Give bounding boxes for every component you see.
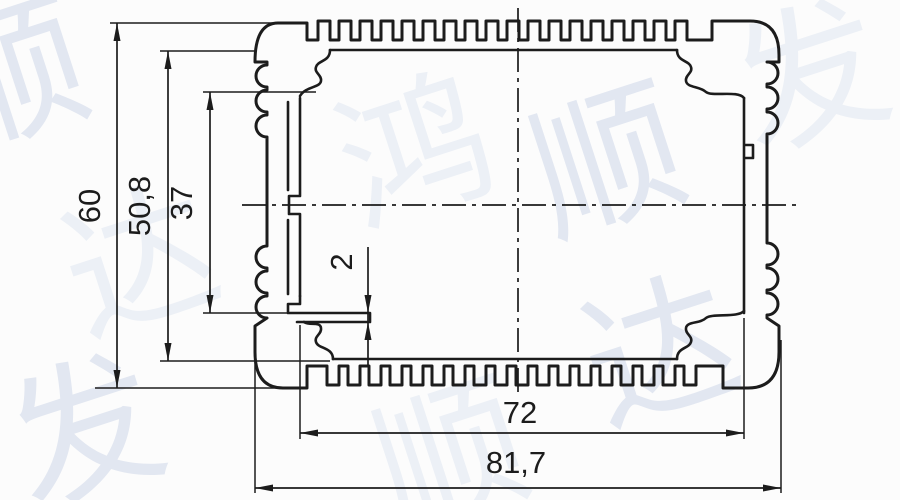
screw-boss-bottom-left [304,322,333,359]
technical-drawing: 顺 发 鸿 顺 达 达 顺 发 60 [0,0,900,500]
dimension-label-overall-height: 60 [72,189,107,223]
screw-boss-top-left [300,50,330,96]
dimension-label-inner-width: 72 [503,395,537,430]
arrowhead [165,343,172,361]
arrowhead [365,295,372,313]
inner-left-wall [288,98,300,296]
watermark-layer: 顺 发 鸿 顺 达 达 顺 发 [0,0,900,500]
watermark-glyph: 达 [562,247,758,459]
arrowhead [207,92,214,110]
arrowhead [726,430,744,437]
dimension-label-overall-width: 81,7 [486,445,546,480]
cad-drawing-canvas: 顺 发 鸿 顺 达 达 顺 发 60 [0,0,900,500]
arrowhead [763,485,781,492]
watermark-glyph: 发 [712,0,900,184]
watermark-glyph: 顺 [0,0,109,184]
dimension-rail-thickness: 2 [324,247,372,366]
pcb-rail [288,296,370,322]
arrowhead [114,23,121,41]
arrowhead [255,485,273,492]
dimension-label-body-height: 50,8 [122,176,157,236]
dimension-label-slot-span: 37 [164,186,199,220]
watermark-glyph: 顺 [509,57,705,269]
arrowhead [365,322,372,340]
dimension-label-rail-thickness: 2 [324,253,359,270]
arrowhead [300,430,318,437]
watermark-glyph: 鸿 [317,47,513,259]
arrowhead [165,51,172,69]
